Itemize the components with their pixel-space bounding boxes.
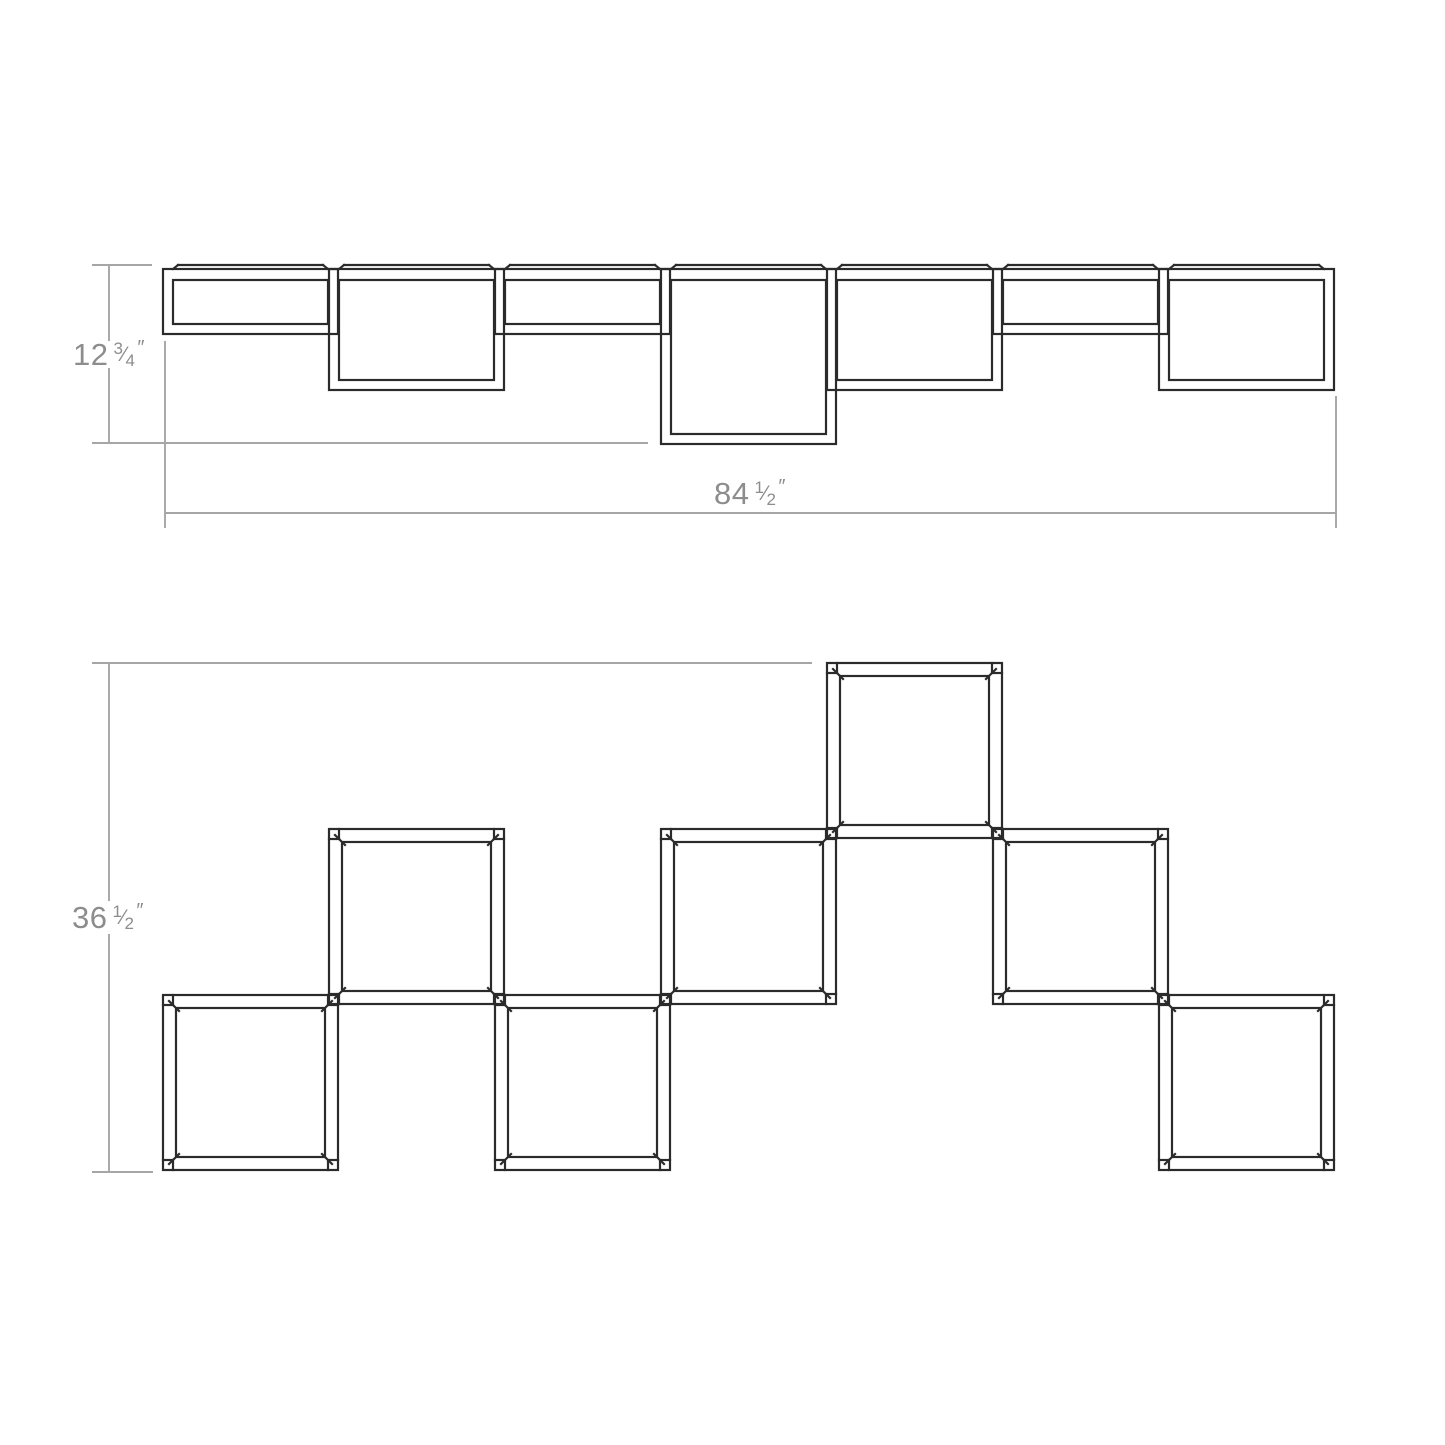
top-view-depth-label: 123⁄4″ <box>73 338 145 370</box>
inch-mark: ″ <box>778 476 786 498</box>
top-view-module-1 <box>163 265 338 334</box>
top-view-module-3 <box>495 265 670 334</box>
top-view-width-label: 841⁄2″ <box>714 477 786 509</box>
front-view-height-dimension <box>92 663 812 1172</box>
top-view-module-4 <box>661 265 836 444</box>
inch-mark: ″ <box>136 900 144 922</box>
front-view-module-5 <box>827 663 1002 838</box>
front-view-module-3 <box>495 995 670 1170</box>
top-view-depth-dimension <box>92 265 648 443</box>
top-view-module-6 <box>993 265 1168 334</box>
top-view-module-2 <box>329 265 504 390</box>
top-view-module-7 <box>1159 265 1334 390</box>
depth-value-fraction: 3⁄4 <box>113 339 135 370</box>
inch-mark: ″ <box>137 337 145 359</box>
height-value-whole: 36 <box>72 900 107 935</box>
front-view-module-2 <box>329 829 504 1004</box>
front-view-height-label: 361⁄2″ <box>72 901 144 933</box>
width-value-whole: 84 <box>714 476 749 511</box>
width-value-fraction: 1⁄2 <box>754 478 776 509</box>
line-drawing <box>0 0 1445 1445</box>
height-value-fraction: 1⁄2 <box>112 902 134 933</box>
front-view-module-7 <box>1159 995 1334 1170</box>
spec-drawing-page: 123⁄4″ 841⁄2″ 361⁄2″ <box>0 0 1445 1445</box>
front-view-module-1 <box>163 995 338 1170</box>
front-view-module-4 <box>661 829 836 1004</box>
front-view-module-6 <box>993 829 1168 1004</box>
top-view-module-5 <box>827 265 1002 390</box>
depth-value-whole: 12 <box>73 337 108 372</box>
